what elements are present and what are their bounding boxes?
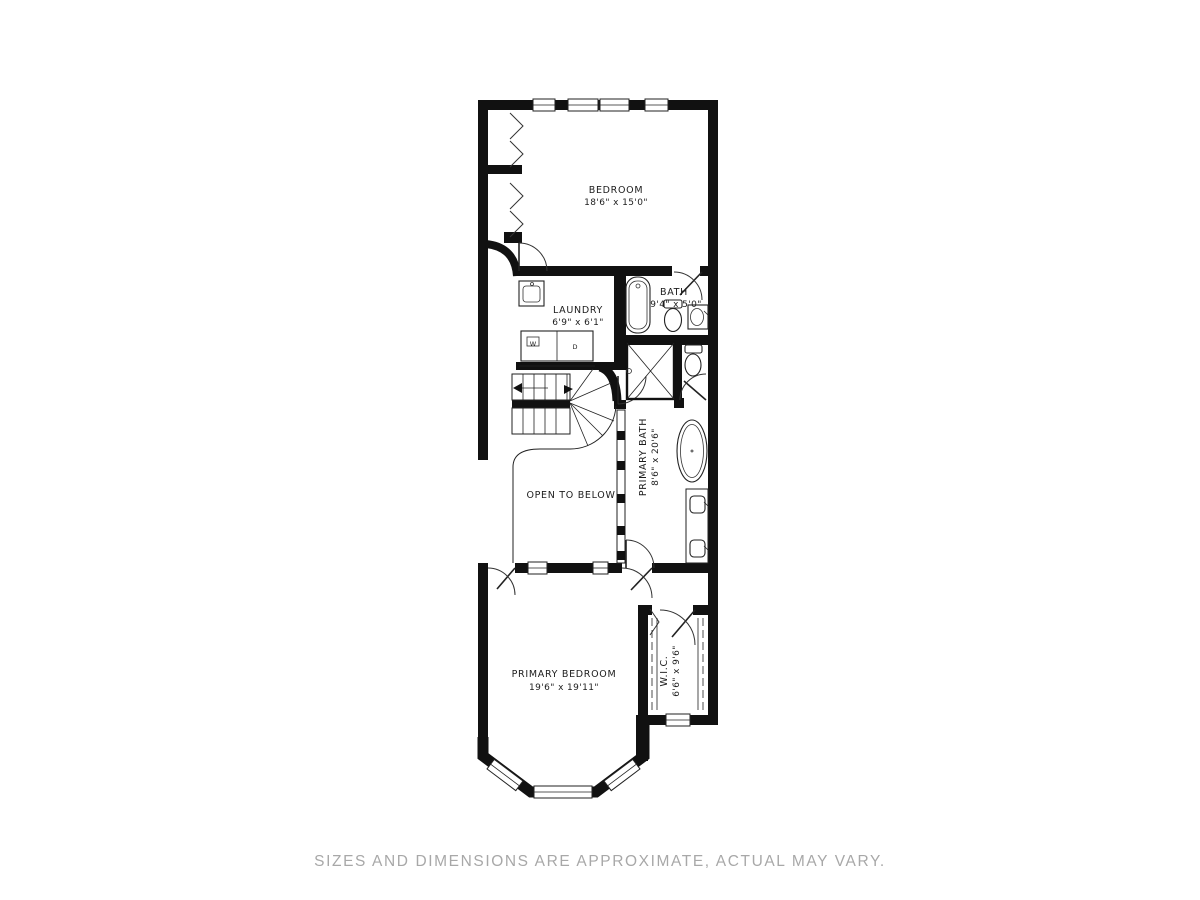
room-labels: BEDROOM 18'6" x 15'0" LAUNDRY 6'9" x 6'1… [512,185,702,697]
open-to-below-edge [513,406,616,563]
stair-arrow-down [564,385,573,394]
closet-divider-wall [478,165,522,174]
primary-bath-door [626,540,654,568]
bath-label: BATH [660,287,688,298]
laundry-label: LAUNDRY [553,305,603,316]
laundry-bath-divider [614,266,626,370]
compartment-bottom-stub [674,398,684,408]
primary-bath-dims: 8'6" x 20'6" [651,428,661,486]
primary-bedroom-door [488,568,515,595]
stair-arrow-up [513,383,522,393]
railing [617,410,625,563]
curved-wall [486,244,517,276]
floor-plan-page: BEDROOM 18'6" x 15'0" LAUNDRY 6'9" x 6'1… [0,0,1200,900]
bay-window-bottom [534,786,592,798]
dryer-label: D [572,343,577,351]
wic-top-wall-right [693,605,718,615]
washer-dryer [519,331,595,366]
left-wall-lower [478,563,488,741]
laundry-sink [519,281,544,306]
mid-band-wall-left [516,266,672,276]
wic-window [666,714,690,726]
bay-window-left [487,759,523,790]
left-wall-upper [478,100,488,460]
bay-window-right [604,759,640,790]
bedroom-label: BEDROOM [589,185,644,196]
floor-plan-svg: BEDROOM 18'6" x 15'0" LAUNDRY 6'9" x 6'1… [0,0,1200,900]
overlook-window-2 [593,562,608,574]
closet-bifold-doors [510,113,523,237]
wic-label: W.I.C. [659,656,670,687]
laundry-dims: 6'9" x 6'1" [552,318,604,328]
bedroom-dims: 18'6" x 15'0" [584,198,648,208]
bedroom-window-3 [600,99,629,111]
bathtub [626,277,650,333]
bedroom-hall-door [622,568,652,598]
bath-dims: 9'4" x 5'0" [650,300,702,310]
primary-bedroom-label: PRIMARY BEDROOM [512,669,617,680]
primary-bathtub [677,420,707,482]
lower-divider-seg4 [652,563,718,573]
overlook-window-1 [528,562,547,574]
bedroom-window-4 [645,99,668,111]
lower-divider-seg2 [547,563,593,573]
wic-left-wall [638,605,648,725]
wic-dims: 6'6" x 9'6" [672,645,682,697]
primary-bath-label: PRIMARY BATH [638,418,649,496]
mid-band-wall-right [700,266,718,276]
lower-divider-seg1 [515,563,528,573]
lower-divider-seg3 [608,563,622,573]
primary-bedroom-dims: 19'6" x 19'11" [529,683,599,693]
washer-label: W [530,340,537,348]
vanity-sink-1 [690,496,705,513]
toilet-2 [685,345,702,376]
bedroom-window-1 [533,99,555,111]
vanity [686,489,708,563]
open-to-below-label: OPEN TO BELOW [526,490,615,501]
shower [627,343,675,399]
toilet-compartment-door [680,374,706,400]
stairs [512,369,616,563]
bedroom-window-2 [568,99,598,111]
disclaimer-text: SIZES AND DIMENSIONS ARE APPROXIMATE, AC… [314,853,886,870]
stair-mid-wall [512,400,570,408]
right-wall [708,100,718,725]
vanity-sink-2 [690,540,705,557]
